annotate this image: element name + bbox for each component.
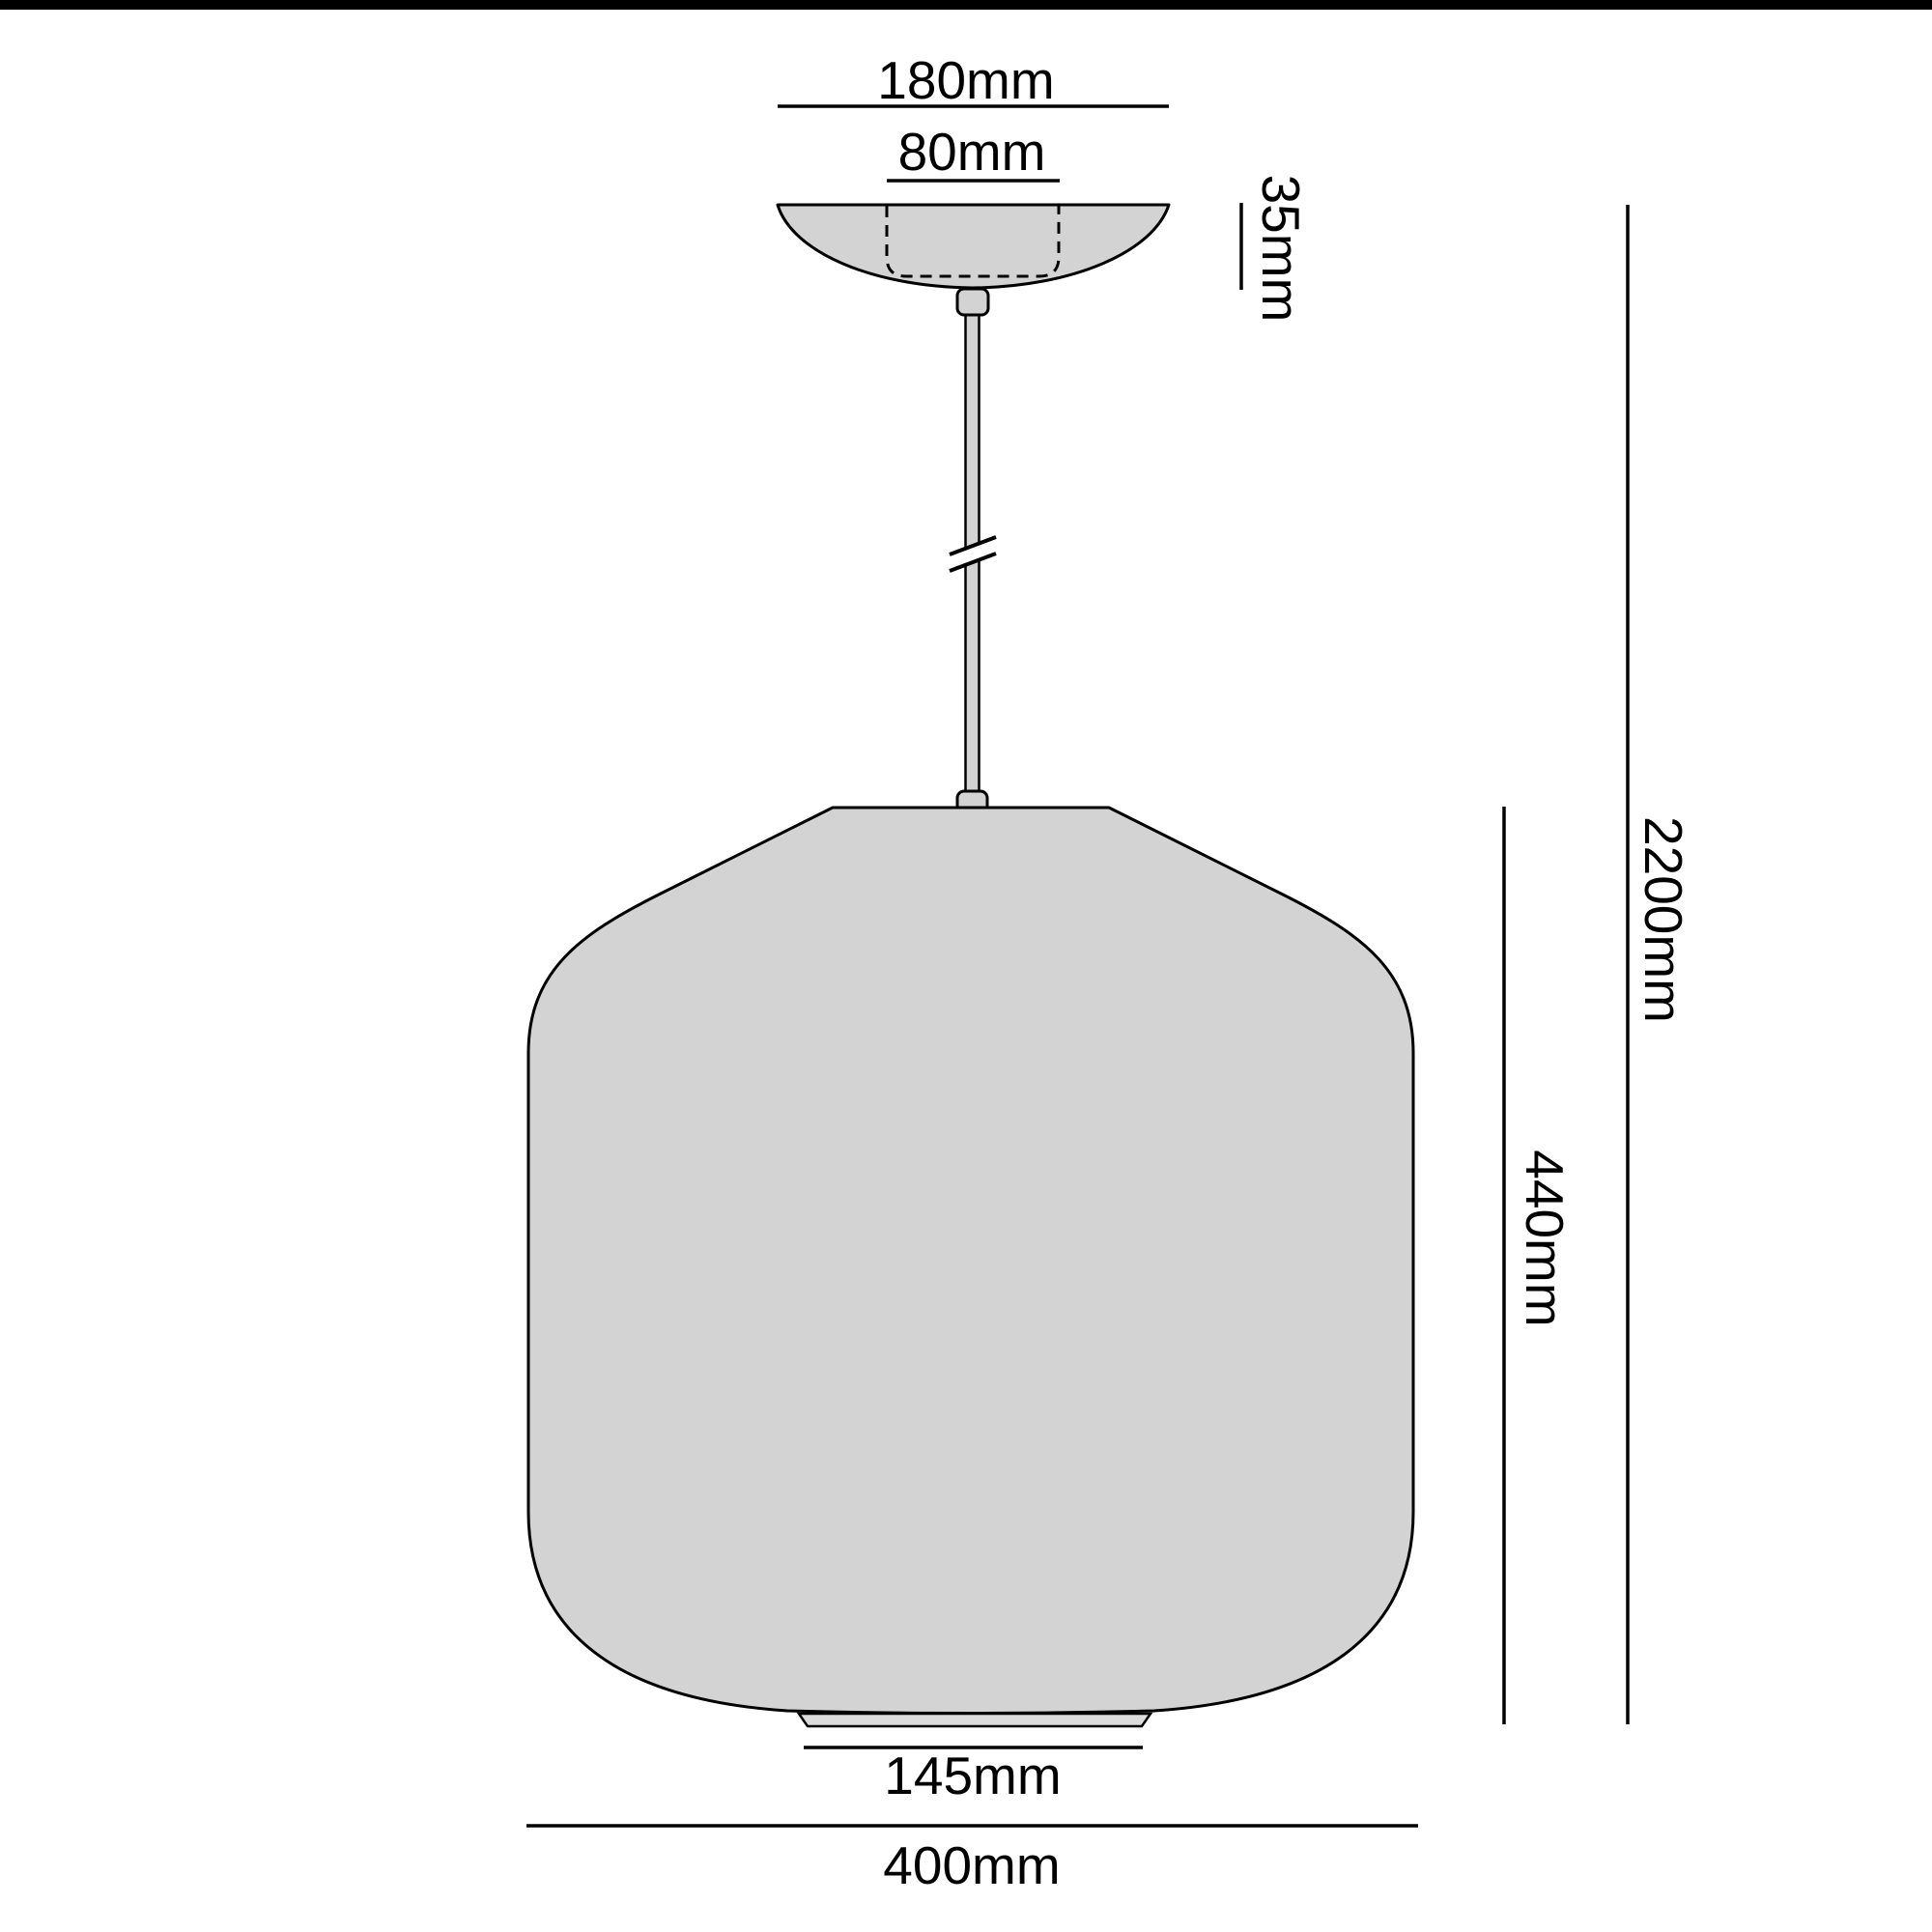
canopy-inner-width-label: 80mm	[898, 122, 1046, 182]
canopy-outer-width-label: 180mm	[877, 50, 1054, 110]
shade-height-label: 440mm	[1515, 1150, 1575, 1326]
dim-canopy-outer-width: 180mm	[778, 50, 1169, 110]
dim-overall-drop: 2200mm	[1628, 205, 1693, 1724]
base-opening-label: 145mm	[884, 1746, 1061, 1805]
dim-shade-height: 440mm	[1504, 807, 1575, 1724]
shade-bottom-ring	[799, 1714, 1151, 1726]
overall-drop-label: 2200mm	[1634, 816, 1693, 1023]
shade-width-label: 400mm	[883, 1835, 1060, 1895]
canopy-stem-connector	[957, 289, 988, 315]
lamp-shade	[528, 808, 1413, 1714]
diagram-canvas: 180mm 80mm 35mm	[0, 0, 1932, 1932]
top-border-bar	[0, 0, 1932, 10]
dim-canopy-inner-width: 80mm	[887, 122, 1060, 182]
canopy-height-label: 35mm	[1251, 175, 1311, 323]
dim-base-opening: 145mm	[804, 1746, 1143, 1805]
dim-shade-width: 400mm	[526, 1826, 1418, 1895]
dim-canopy-height: 35mm	[1241, 175, 1311, 323]
ceiling-canopy	[778, 205, 1169, 288]
pendant-lamp-dimension-diagram: 180mm 80mm 35mm	[0, 0, 1932, 1932]
